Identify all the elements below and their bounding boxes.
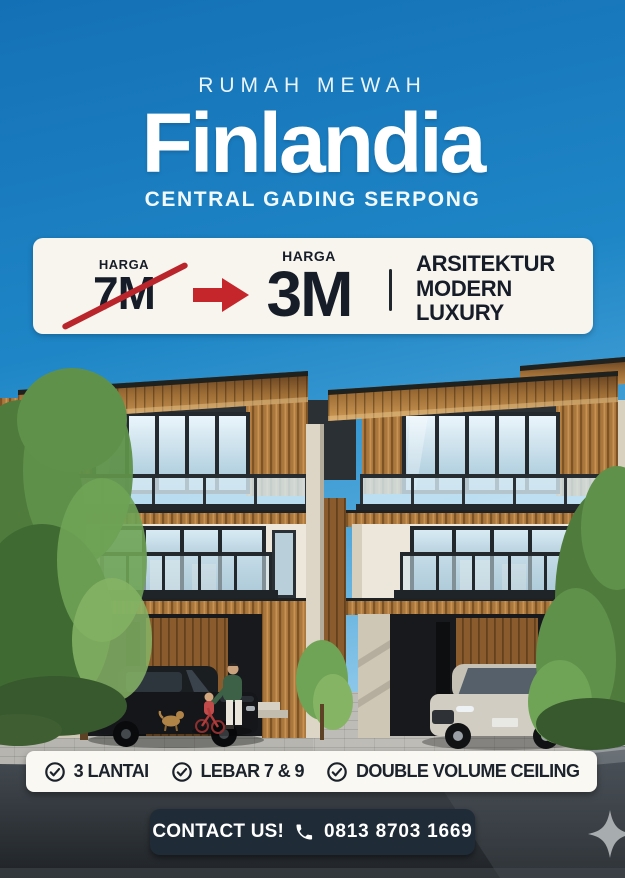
feature-label: DOUBLE VOLUME CEILING <box>356 761 579 782</box>
old-price: HARGA 7M <box>63 257 185 316</box>
tagline: ARSITEKTUR MODERN LUXURY <box>416 252 555 326</box>
check-circle-icon <box>44 761 66 783</box>
tagline-line-1: ARSITEKTUR <box>416 252 555 277</box>
feature-ceiling: DOUBLE VOLUME CEILING <box>326 761 579 783</box>
contact-phone-number: 0813 8703 1669 <box>324 821 473 843</box>
arrow-right-icon <box>193 276 251 314</box>
project-location: CENTRAL GADING SERPONG <box>0 188 625 212</box>
feature-label: 3 LANTAI <box>74 761 149 782</box>
feature-floors: 3 LANTAI <box>44 761 149 783</box>
vertical-divider <box>389 269 392 311</box>
new-price: HARGA 3M <box>259 248 359 324</box>
check-circle-icon <box>171 761 193 783</box>
kicker-text: RUMAH MEWAH <box>0 74 625 98</box>
feature-width: LEBAR 7 & 9 <box>171 761 304 783</box>
project-title: Finlandia <box>0 101 625 185</box>
poster: RUMAH MEWAH Finlandia CENTRAL GADING SER… <box>0 0 625 878</box>
phone-icon <box>294 822 314 842</box>
check-circle-icon <box>326 761 348 783</box>
new-price-value: 3M <box>267 264 352 324</box>
header: RUMAH MEWAH Finlandia CENTRAL GADING SER… <box>0 74 625 212</box>
contact-button[interactable]: CONTACT US! 0813 8703 1669 <box>150 809 475 855</box>
tagline-line-3: LUXURY <box>416 301 555 326</box>
price-card: HARGA 7M HARGA 3M ARSITEKTUR MODERN LUXU… <box>33 238 593 334</box>
feature-label: LEBAR 7 & 9 <box>201 761 304 782</box>
features-bar: 3 LANTAI LEBAR 7 & 9 DOUBLE VOLUME CEILI… <box>26 751 597 792</box>
contact-cta-label: CONTACT US! <box>152 821 284 843</box>
tagline-line-2: MODERN <box>416 277 555 302</box>
